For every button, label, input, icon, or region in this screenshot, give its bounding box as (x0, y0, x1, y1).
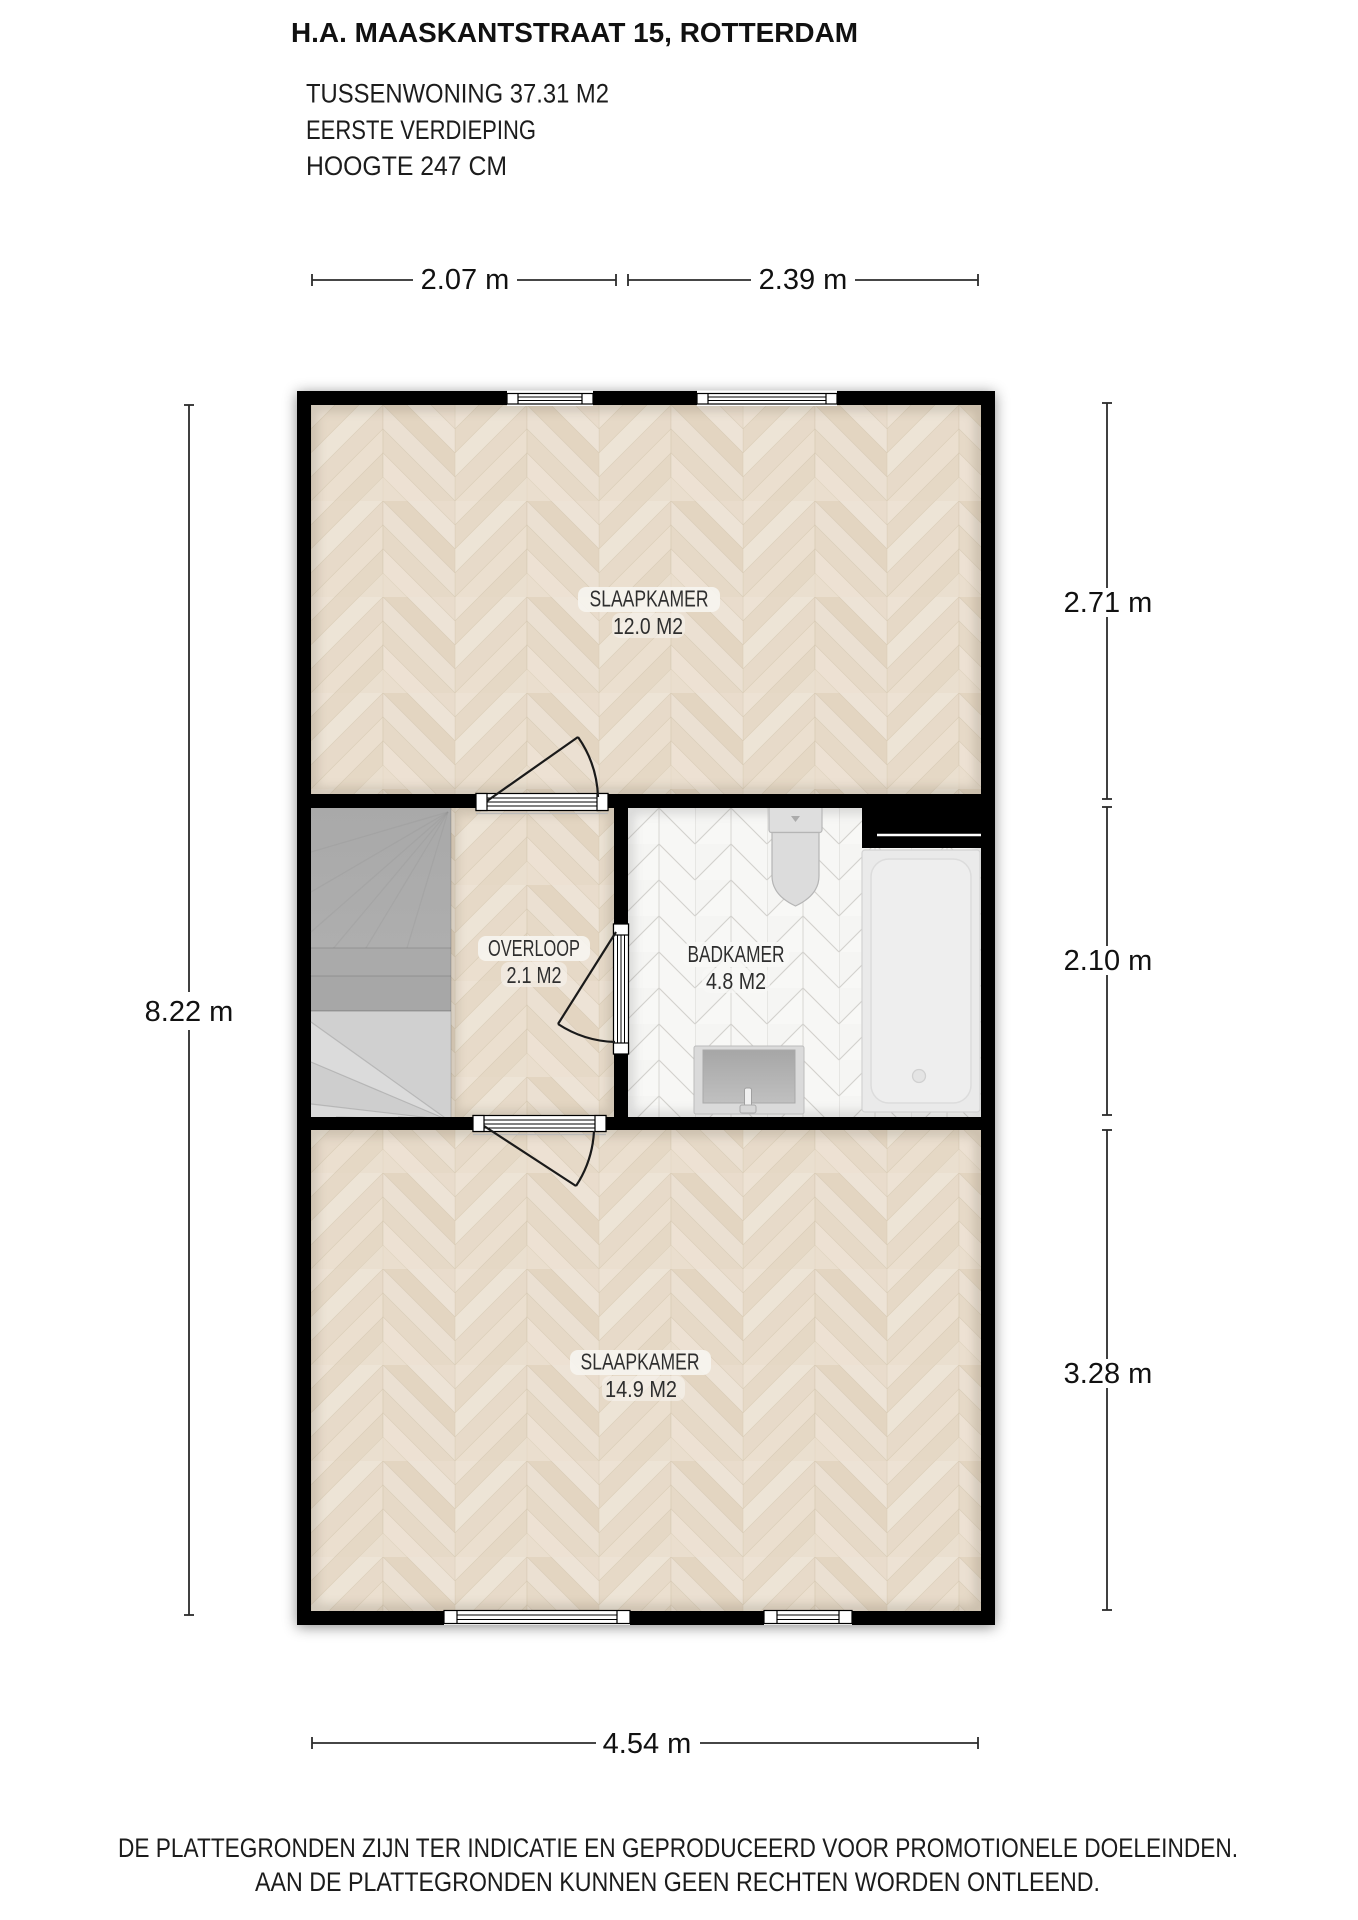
svg-text:2.71 m: 2.71 m (1064, 587, 1153, 619)
svg-text:BADKAMER: BADKAMER (688, 941, 785, 967)
svg-text:AAN DE PLATTEGRONDEN KUNNEN GE: AAN DE PLATTEGRONDEN KUNNEN GEEN RECHTEN… (255, 1867, 1100, 1897)
svg-text:2.10 m: 2.10 m (1064, 945, 1153, 977)
svg-text:H.A. MAASKANTSTRAAT 15, ROTTER: H.A. MAASKANTSTRAAT 15, ROTTERDAM (291, 17, 858, 48)
svg-text:TUSSENWONING 37.31 M2: TUSSENWONING 37.31 M2 (306, 79, 609, 109)
svg-text:14.9 M2: 14.9 M2 (605, 1376, 677, 1402)
svg-text:DE PLATTEGRONDEN ZIJN TER INDI: DE PLATTEGRONDEN ZIJN TER INDICATIE EN G… (118, 1833, 1238, 1863)
svg-text:SLAAPKAMER: SLAAPKAMER (581, 1349, 700, 1375)
svg-text:OVERLOOP: OVERLOOP (488, 935, 580, 961)
svg-text:4.54 m: 4.54 m (603, 1728, 692, 1760)
svg-text:EERSTE VERDIEPING: EERSTE VERDIEPING (306, 115, 536, 145)
svg-text:2.07 m: 2.07 m (421, 264, 510, 296)
svg-text:3.28 m: 3.28 m (1064, 1358, 1153, 1390)
svg-text:12.0 M2: 12.0 M2 (613, 613, 683, 639)
svg-text:4.8 M2: 4.8 M2 (706, 968, 766, 994)
svg-text:SLAAPKAMER: SLAAPKAMER (590, 586, 709, 612)
svg-text:2.39 m: 2.39 m (759, 264, 848, 296)
svg-text:2.1 M2: 2.1 M2 (507, 962, 562, 988)
svg-text:8.22 m: 8.22 m (145, 996, 234, 1028)
svg-text:HOOGTE 247 CM: HOOGTE 247 CM (306, 151, 507, 181)
